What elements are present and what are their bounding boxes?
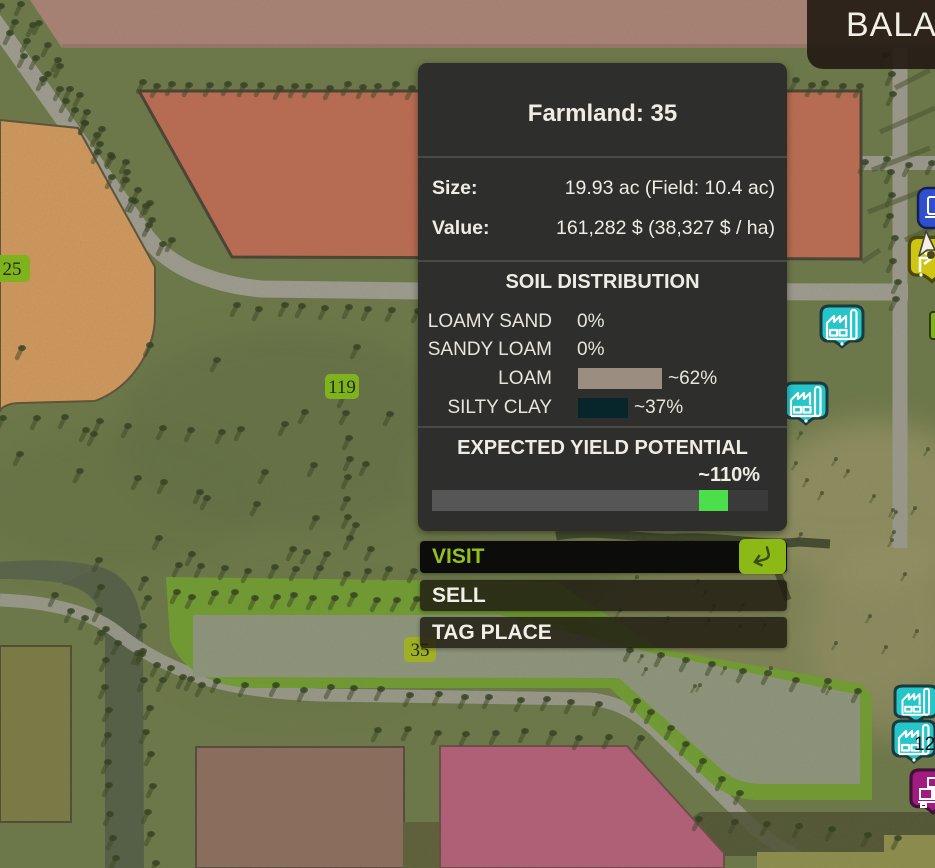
- svg-text:12: 12: [914, 734, 935, 755]
- svg-text:119: 119: [328, 377, 356, 398]
- svg-text:25: 25: [3, 259, 22, 280]
